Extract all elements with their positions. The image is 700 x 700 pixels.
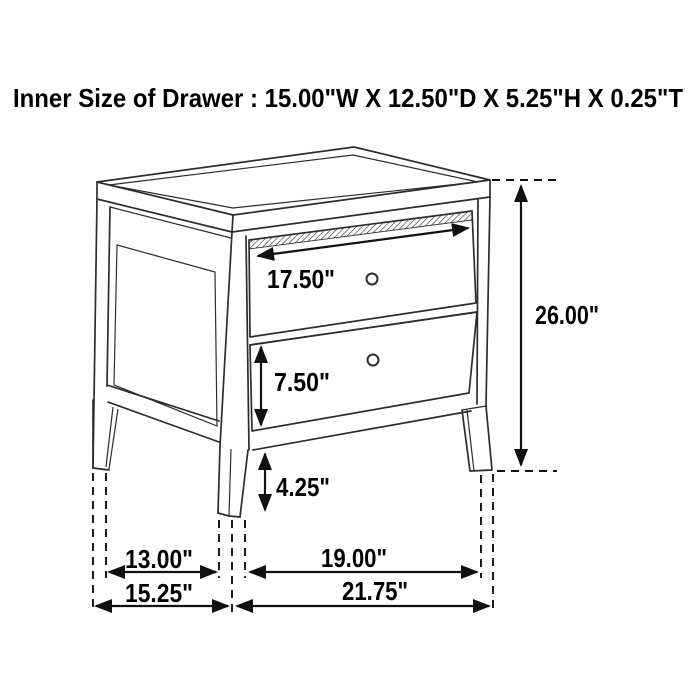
front-right-leg — [462, 406, 492, 471]
side-top-rail-edge — [110, 207, 231, 238]
top-drawer-knob — [367, 274, 378, 285]
front-right-post-outer-edge — [486, 197, 490, 406]
front-corner-leg-left-edge — [218, 446, 220, 513]
nightstand-drawing — [93, 147, 492, 517]
label-overall-height: 26.00" — [535, 300, 599, 330]
back-left-leg-taper-inner-edge — [109, 409, 118, 469]
dimension-labels: 17.50" 7.50" 4.25" 26.00" 13.00" 19.00" … — [125, 264, 599, 608]
top-panel-front-corner-edge — [232, 215, 233, 232]
page-title: Inner Size of Drawer : 15.00"W X 12.50"D… — [13, 83, 683, 113]
front-right-post-inner-edge — [477, 200, 478, 404]
front-corner-leg — [218, 446, 248, 517]
label-overall-depth: 15.25" — [125, 578, 193, 608]
front-left-post-corner-edge — [220, 232, 232, 446]
label-leg-height: 4.25" — [276, 472, 330, 502]
label-bottom-drawer-height: 7.50" — [274, 367, 330, 397]
label-overall-width: 21.75" — [342, 576, 408, 606]
back-left-post-inner-edge — [107, 207, 110, 386]
front-corner-leg-corner-edge — [229, 449, 231, 516]
label-front-leg-spacing: 19.00" — [321, 543, 387, 573]
label-top-drawer-width: 17.50" — [267, 264, 335, 294]
bottom-drawer-knob — [368, 355, 379, 366]
front-bottom-rail-edge — [253, 411, 471, 450]
back-left-leg — [93, 400, 118, 470]
front-corner-leg-right-edge — [240, 450, 248, 517]
front-right-leg-outline — [462, 406, 492, 471]
nightstand-dimension-diagram: Inner Size of Drawer : 15.00"W X 12.50"D… — [0, 0, 700, 700]
front-right-leg-top-edge — [462, 406, 486, 410]
dimension-diagram-page: Inner Size of Drawer : 15.00"W X 12.50"D… — [0, 0, 700, 700]
side-bottom-rail-top-edge — [107, 385, 219, 421]
back-left-leg-taper-edge — [106, 407, 113, 467]
label-side-leg-spacing: 13.00" — [125, 544, 193, 574]
side-recessed-panel — [114, 245, 217, 426]
top-panel-bottom-edge — [97, 197, 490, 232]
side-bottom-rail-bottom-edge — [108, 402, 219, 442]
